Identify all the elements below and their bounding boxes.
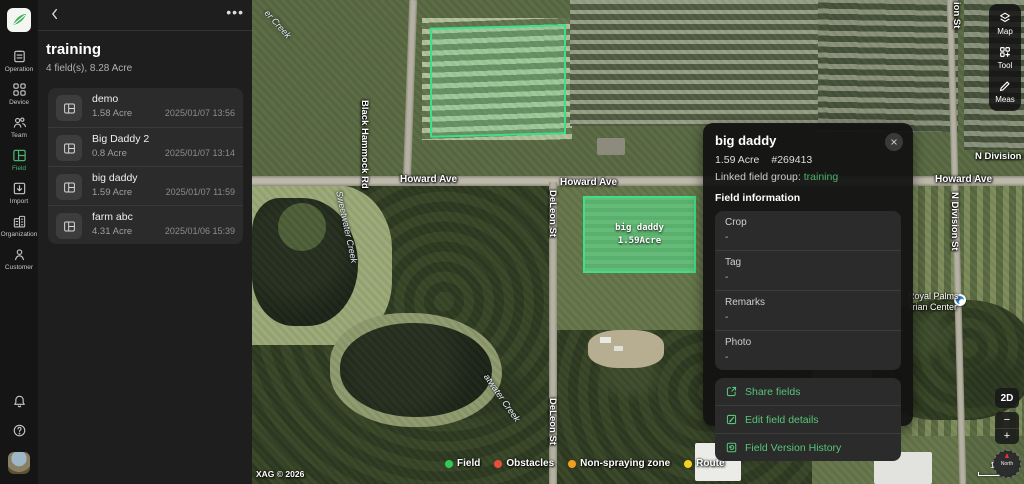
sidebar-item-organization[interactable]: Organization xyxy=(0,209,38,242)
field-grid-icon xyxy=(56,95,82,121)
field-list-item-demo[interactable]: demo 1.58 Acre 2025/01/07 13:56 xyxy=(48,88,243,127)
map-copyright: XAG © 2026 xyxy=(256,469,304,479)
info-panel-meta: 1.59 Acre #269413 xyxy=(715,154,901,166)
customer-person-icon xyxy=(12,247,27,262)
dirt-yard xyxy=(588,330,664,368)
edit-icon xyxy=(725,413,738,426)
info-row-tag: Tag - xyxy=(715,250,901,290)
share-fields-button[interactable]: Share fields xyxy=(715,378,901,405)
legend-field: Field xyxy=(445,458,480,469)
field-polygon-bigdaddy[interactable]: big daddy 1.59Acre xyxy=(583,196,696,273)
street-label-howard-3: Howard Ave xyxy=(935,174,992,185)
street-label-howard-2: Howard Ave xyxy=(560,177,617,188)
field-actions-card: Share fields Edit field details Field Ve… xyxy=(715,378,901,461)
info-area: 1.59 Acre xyxy=(715,154,759,166)
edit-field-details-button[interactable]: Edit field details xyxy=(715,405,901,433)
field-grid-icon xyxy=(56,213,82,239)
info-field-id: #269413 xyxy=(771,154,812,166)
street-label-ndivision-h: N Division S xyxy=(975,151,1024,162)
building-house xyxy=(597,138,625,155)
back-button[interactable] xyxy=(48,7,62,21)
compass[interactable]: North xyxy=(993,450,1021,478)
linked-group-link[interactable]: training xyxy=(804,171,838,183)
user-avatar[interactable] xyxy=(8,452,30,474)
operation-clipboard-icon xyxy=(12,49,27,64)
map-pond-island xyxy=(278,203,326,251)
app-window: big daddy 1.59Acre Howard Ave Howard Ave… xyxy=(0,0,1024,484)
info-panel-title: big daddy xyxy=(715,133,901,148)
compass-label: North xyxy=(1001,461,1013,467)
map-pond-lower xyxy=(340,323,492,417)
map-layers-button[interactable]: Map xyxy=(997,11,1013,36)
street-label-deleon-2: DeLeon St xyxy=(547,398,558,445)
history-icon xyxy=(725,441,738,454)
field-grid-icon xyxy=(56,174,82,200)
legend-non-spraying: Non-spraying zone xyxy=(568,458,670,469)
sidebar-item-team[interactable]: Team xyxy=(0,110,38,143)
field-list: demo 1.58 Acre 2025/01/07 13:56 Big Dadd… xyxy=(48,88,243,244)
legend-route-dot xyxy=(684,460,692,468)
field-grid-icon xyxy=(56,135,82,161)
street-label-ndivision-v: N Division St xyxy=(949,192,960,251)
street-label-howard-1: Howard Ave xyxy=(400,174,457,185)
more-options-icon[interactable]: ••• xyxy=(226,4,244,20)
zoom-control: − + xyxy=(995,412,1019,444)
group-summary: 4 field(s), 8.28 Acre xyxy=(46,63,132,74)
device-drone-icon xyxy=(12,82,27,97)
import-box-icon xyxy=(12,181,27,196)
field-version-history-button[interactable]: Field Version History xyxy=(715,433,901,461)
field-information-heading: Field information xyxy=(715,192,901,204)
compass-needle xyxy=(1005,453,1009,458)
vehicle xyxy=(614,346,623,351)
info-row-crop: Crop - xyxy=(715,211,901,250)
sidebar-item-operation[interactable]: Operation xyxy=(0,44,38,77)
poi-label: Royal Palms itrian Center xyxy=(908,291,959,313)
legend-field-dot xyxy=(445,460,453,468)
street-label-black-hammock: Black Hammock Rd xyxy=(359,100,370,189)
sidebar-item-device[interactable]: Device xyxy=(0,77,38,110)
map-tool-button[interactable]: Tool xyxy=(998,45,1013,70)
map-measure-button[interactable]: Meas xyxy=(995,79,1015,104)
map-legend: Field Obstacles Non-spraying zone Route xyxy=(445,458,725,469)
field-group-panel: ••• training 4 field(s), 8.28 Acre demo … xyxy=(38,0,252,484)
field-polygon-label: big daddy 1.59Acre xyxy=(585,198,694,271)
sidebar-item-field[interactable]: Field xyxy=(0,143,38,176)
help-icon[interactable] xyxy=(12,423,27,438)
info-row-remarks: Remarks - xyxy=(715,290,901,330)
field-information-card: Crop - Tag - Remarks - Photo - xyxy=(715,211,901,370)
field-list-item-farm-abc[interactable]: farm abc 4.31 Acre 2025/01/06 15:39 xyxy=(48,205,243,244)
field-polygon-large[interactable] xyxy=(430,24,566,138)
measure-pencil-icon xyxy=(998,79,1012,93)
zoom-out-button[interactable]: − xyxy=(995,412,1019,429)
linked-field-group: Linked field group: training xyxy=(715,171,901,183)
organization-building-icon xyxy=(12,214,27,229)
share-icon xyxy=(725,385,738,398)
info-row-photo: Photo - xyxy=(715,330,901,370)
street-label-deleon-1: DeLeon St xyxy=(547,190,558,237)
legend-obstacles: Obstacles xyxy=(494,458,554,469)
field-info-panel: big daddy 1.59 Acre #269413 Linked field… xyxy=(703,123,913,426)
team-people-icon xyxy=(12,115,27,130)
layers-icon xyxy=(998,11,1012,25)
field-grid-icon xyxy=(12,148,27,163)
map-toolbar: Map Tool Meas xyxy=(989,4,1021,111)
group-title: training xyxy=(46,41,101,58)
map-2d-toggle[interactable]: 2D xyxy=(995,388,1019,408)
sidebar-item-import[interactable]: Import xyxy=(0,176,38,209)
street-label-ndivision-top: ion St xyxy=(951,2,962,28)
zoom-in-button[interactable]: + xyxy=(995,429,1019,445)
xag-logo[interactable] xyxy=(7,8,31,32)
tool-grid-icon xyxy=(998,45,1012,59)
close-button[interactable] xyxy=(885,133,903,151)
map-croprows-mid xyxy=(570,0,820,126)
field-list-item-big-daddy[interactable]: big daddy 1.59 Acre 2025/01/07 11:59 xyxy=(48,166,243,205)
map-trees-mid xyxy=(422,185,562,315)
legend-non-spraying-dot xyxy=(568,460,576,468)
sidebar-item-customer[interactable]: Customer xyxy=(0,242,38,275)
legend-obstacles-dot xyxy=(494,460,502,468)
field-list-item-big-daddy-2[interactable]: Big Daddy 2 0.8 Acre 2025/01/07 13:14 xyxy=(48,127,243,166)
close-icon xyxy=(889,137,899,147)
map-croprows-gray xyxy=(818,0,958,132)
notifications-bell-icon[interactable] xyxy=(12,394,27,409)
panel-header: ••• xyxy=(38,0,252,31)
vehicle xyxy=(600,337,611,343)
app-sidebar: Operation Device Team Field xyxy=(0,0,38,484)
